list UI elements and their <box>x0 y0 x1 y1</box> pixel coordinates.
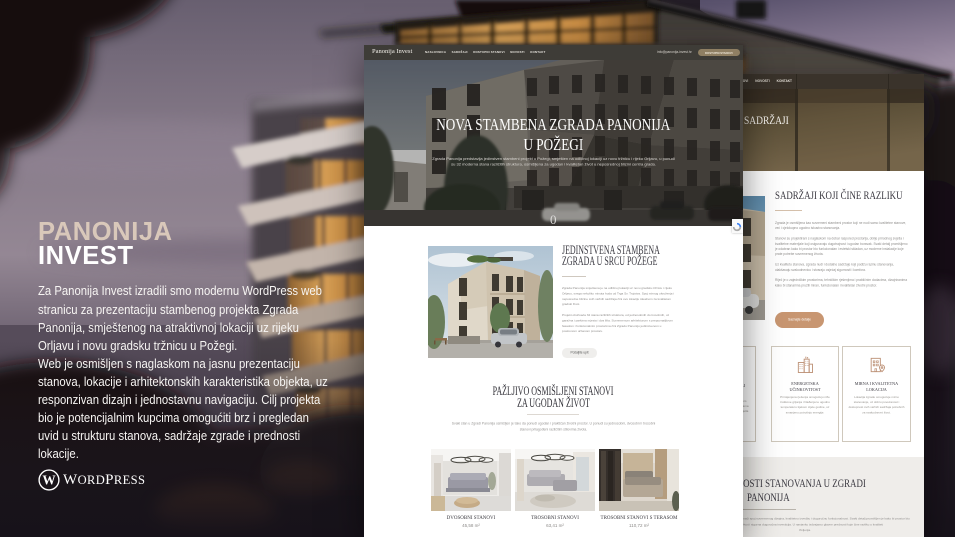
svg-text:W: W <box>42 473 56 488</box>
